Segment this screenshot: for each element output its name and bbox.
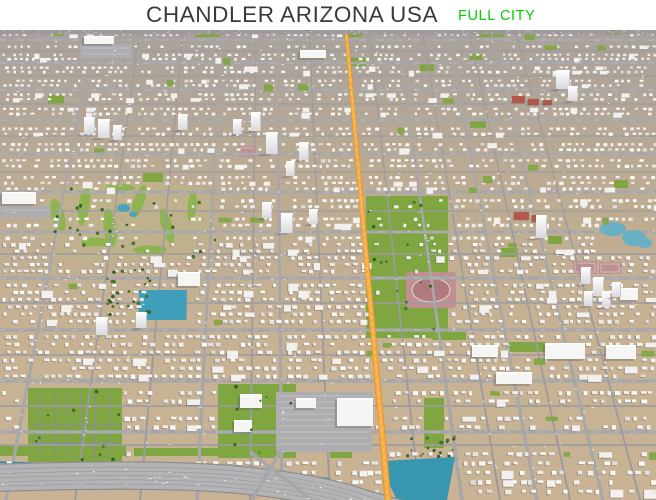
full-city-badge: FULL CITY: [458, 8, 535, 24]
screenshot-root: CHANDLER ARIZONA USA FULL CITY: [0, 0, 656, 500]
page-title: CHANDLER ARIZONA USA: [146, 2, 438, 28]
city-3d-render: [0, 30, 656, 500]
city-map-canvas: [0, 30, 656, 500]
title-bar: CHANDLER ARIZONA USA FULL CITY: [0, 0, 656, 30]
